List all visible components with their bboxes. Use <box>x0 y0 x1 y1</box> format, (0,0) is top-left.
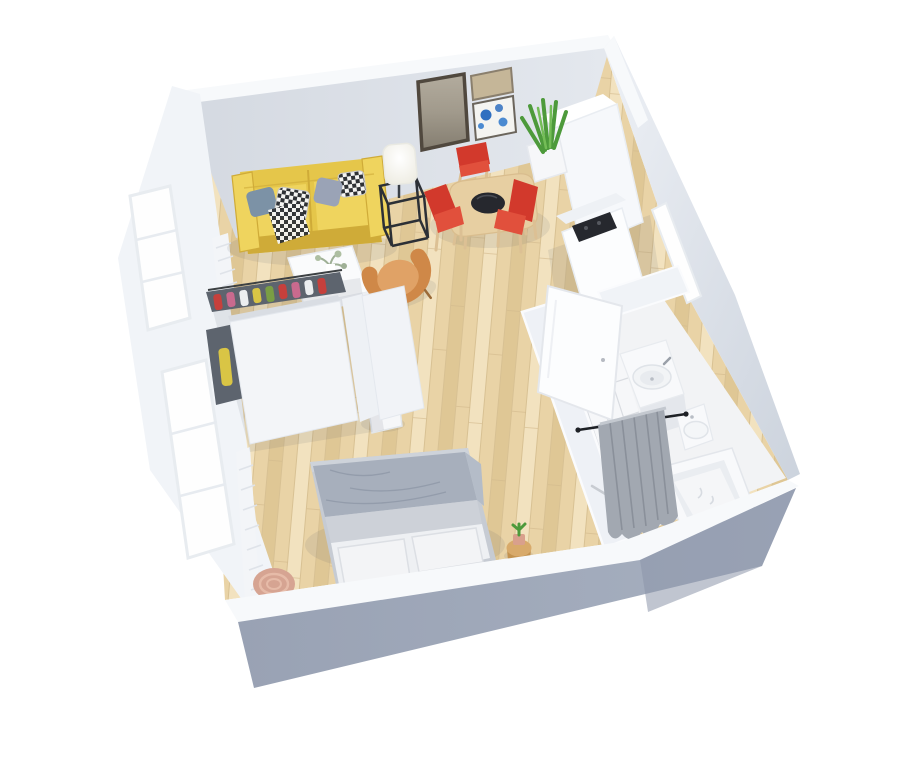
lavender-cushion <box>313 177 344 208</box>
blue-artwork <box>473 96 516 140</box>
sofa <box>232 156 390 254</box>
large-artwork <box>418 74 468 150</box>
floor-plan-canvas <box>0 0 900 765</box>
wardrobe-sliding-door <box>230 301 358 444</box>
floor-plan-render: 3D isometric floor-plan rendering of a s… <box>0 0 900 765</box>
